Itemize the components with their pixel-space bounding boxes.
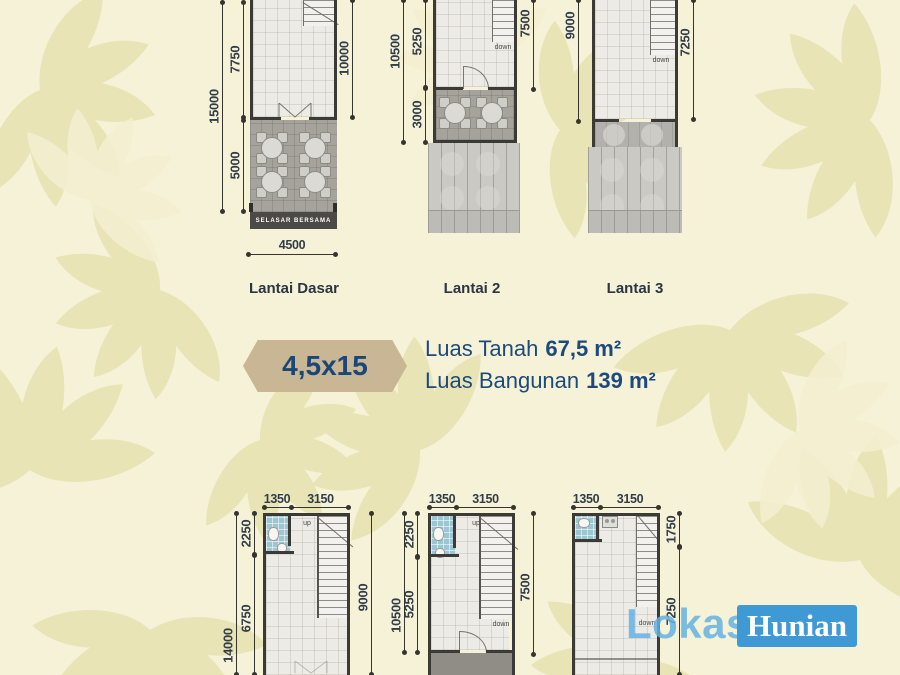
dimension-label: 1750 (664, 510, 679, 550)
dimension-label: 2250 (239, 511, 254, 557)
shared-corridor-band: SELASAR BERSAMA (250, 212, 337, 229)
table-ghost (476, 186, 500, 210)
area-specs: Luas Tanah67,5 m² Luas Bangunan139 m² (425, 336, 656, 394)
brochure-floorplan-page: SELASAR BERSAMA 15000 7750 5000 10000 45… (0, 0, 900, 675)
floor-label: Lantai Dasar (238, 280, 350, 297)
dimension-line (533, 513, 534, 655)
dimension-line (425, 88, 426, 143)
land-area-value: 67,5 m² (545, 336, 621, 361)
table-ghost (440, 152, 464, 176)
table-top (304, 137, 326, 159)
stair-direction-label: down (648, 57, 674, 64)
dimension-line (371, 513, 372, 675)
unit-size-label: 4,5x15 (282, 350, 368, 382)
dimension-label: 3150 (456, 492, 515, 506)
wall (512, 513, 515, 653)
dimension-label: 5000 (228, 141, 243, 191)
dimension-line (236, 513, 237, 675)
dimension-line (428, 507, 515, 508)
dimension-label: 7500 (518, 565, 533, 611)
stair-direction-label: down (490, 44, 516, 51)
interior-wall-line (575, 658, 657, 660)
toilet-icon (433, 527, 444, 541)
wall (347, 513, 350, 675)
wall (512, 653, 515, 675)
stair-direction-label: down (488, 621, 514, 628)
dimension-line (352, 0, 353, 118)
dimension-line (254, 555, 255, 675)
table-top (481, 102, 503, 124)
staircase (650, 0, 677, 55)
floor-label: Lantai 2 (420, 280, 524, 297)
dimension-line (679, 513, 680, 547)
wall (575, 539, 602, 542)
wall (657, 513, 660, 675)
toilet-icon (268, 527, 279, 541)
table-with-chairs (254, 164, 290, 200)
table-top (261, 171, 283, 193)
wall (288, 516, 291, 546)
wall (431, 554, 459, 557)
dimension-label: 15000 (207, 77, 222, 137)
stove-icon (602, 516, 618, 528)
dimension-label: 1350 (572, 492, 600, 506)
dimension-line (263, 507, 350, 508)
wall (572, 513, 660, 516)
double-door-symbol (278, 101, 312, 119)
wall (263, 513, 350, 516)
dimension-label: 7250 (678, 20, 693, 66)
table-with-chairs (474, 95, 510, 131)
burner (605, 519, 609, 523)
building-area-line: Luas Bangunan139 m² (425, 368, 656, 394)
land-area-label: Luas Tanah (425, 336, 538, 361)
dimension-line (572, 507, 660, 508)
land-area-line: Luas Tanah67,5 m² (425, 336, 656, 362)
burner (611, 519, 615, 523)
dimension-line (693, 0, 694, 120)
dimension-label: 9000 (356, 575, 371, 621)
table-top (444, 102, 466, 124)
wall (453, 516, 456, 548)
table-ghost (600, 158, 624, 182)
staircase (492, 0, 516, 42)
dimension-label: 3150 (600, 492, 660, 506)
wall (263, 513, 266, 675)
dimension-line (578, 0, 579, 122)
table-ghost (440, 186, 464, 210)
dimension-line (243, 2, 244, 118)
dimension-label: 5250 (410, 19, 425, 65)
dimension-label: 10500 (389, 588, 404, 644)
stair-direction-label: up (299, 520, 315, 527)
dimension-line (404, 513, 405, 653)
dimension-label: 3150 (291, 492, 350, 506)
dimension-line (254, 513, 255, 555)
dimension-line (533, 0, 534, 90)
dimension-label: 9000 (563, 3, 578, 49)
unit-size-badge: 4,5x15 (243, 340, 407, 392)
staircase (636, 516, 659, 607)
dimension-line (222, 2, 223, 212)
dimension-line (425, 0, 426, 88)
balcony-floor (431, 653, 512, 675)
table-with-chairs (297, 130, 333, 166)
table-ghost (641, 124, 663, 146)
wall-endcap (249, 203, 253, 212)
dimension-label: 3000 (410, 92, 425, 138)
stair-direction-label: up (468, 520, 484, 527)
dimension-label: 14000 (221, 618, 236, 674)
watermark-hunian: Hunian (737, 605, 857, 647)
dimension-line (243, 120, 244, 212)
dimension-line (247, 254, 337, 255)
wall (428, 513, 515, 516)
dimension-label: 7500 (518, 1, 533, 47)
roof-edge-band (588, 210, 682, 233)
table-ghost (640, 158, 664, 182)
wall (428, 513, 431, 653)
dimension-label: 4500 (247, 238, 337, 252)
table-with-chairs (437, 95, 473, 131)
wall (596, 513, 599, 542)
wall (250, 0, 253, 120)
dimension-label: 7750 (228, 35, 243, 85)
table-with-chairs (297, 164, 333, 200)
dimension-label: 1350 (263, 492, 291, 506)
wall-endcap (333, 203, 337, 212)
dimension-line (417, 513, 418, 557)
dimension-line (417, 557, 418, 653)
wall (266, 551, 294, 554)
table-top (261, 137, 283, 159)
table-ghost (476, 152, 500, 176)
building-area-label: Luas Bangunan (425, 368, 579, 393)
dimension-label: 10000 (337, 31, 352, 87)
wall (428, 653, 431, 675)
dimension-label: 6750 (239, 596, 254, 642)
toilet-icon (578, 518, 590, 528)
table-with-chairs (254, 130, 290, 166)
table-ghost (603, 124, 625, 146)
double-door-symbol (294, 659, 328, 675)
wall (572, 513, 575, 675)
dimension-label: 1350 (428, 492, 456, 506)
dimension-label: 10500 (388, 24, 403, 80)
building-area-value: 139 m² (586, 368, 656, 393)
floor-label: Lantai 3 (583, 280, 687, 297)
roof-edge-band (428, 210, 520, 233)
table-top (304, 171, 326, 193)
dimension-line (403, 0, 404, 143)
